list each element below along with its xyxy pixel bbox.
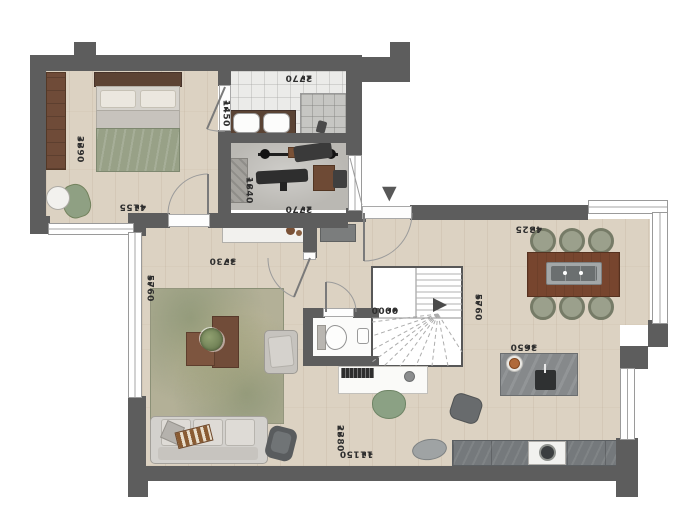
island-pot — [509, 358, 520, 369]
dim-entry-floor-level: 0000 — [386, 307, 398, 314]
stairwell — [371, 266, 463, 367]
toilet-wall — [303, 356, 379, 366]
wall — [132, 213, 170, 228]
entrance-marker-icon: ▼ — [382, 184, 397, 203]
chimney — [74, 42, 96, 57]
sink — [233, 113, 260, 133]
floor-plan: ▼ 4155 3390 2770 1450 1840 2770 3730 576… — [0, 0, 700, 530]
dim-gym-width: 2770 — [300, 206, 312, 213]
dining-chair — [530, 294, 556, 320]
sofa-cushion — [225, 419, 255, 446]
dim-bedroom-depth: 3390 — [77, 136, 84, 148]
dim-gym-depth: 1840 — [246, 177, 253, 189]
table-tray-inner — [551, 266, 597, 281]
dim-bedroom-width: 4155 — [134, 204, 146, 211]
desk-lamp — [404, 371, 415, 382]
sink — [263, 113, 290, 133]
wall — [218, 213, 348, 228]
gym-window — [348, 155, 362, 211]
dining-chair — [559, 294, 585, 320]
wall — [410, 205, 588, 220]
bed-pillow — [100, 90, 136, 108]
hall-door-jamb — [303, 252, 316, 260]
dining-chair — [588, 228, 614, 254]
washing-machine-door — [539, 444, 556, 461]
wall — [346, 71, 362, 155]
kitchen-window — [620, 368, 635, 440]
bed-blanket — [96, 128, 180, 172]
wall — [146, 466, 616, 481]
wall — [620, 346, 648, 369]
dining-chair — [559, 228, 585, 254]
wall — [30, 216, 50, 234]
bed-pillow — [140, 90, 176, 108]
bedroom-door-frame — [168, 214, 210, 227]
wall — [128, 466, 148, 497]
plyo-box — [313, 165, 335, 191]
bed-headboard — [94, 72, 182, 87]
dim-hall-width: 3730 — [224, 258, 236, 265]
desk-chair — [372, 390, 406, 419]
barbell-plate — [260, 149, 270, 159]
wall — [30, 55, 46, 234]
wall — [218, 133, 362, 143]
dim-bathroom-depth: 1450 — [223, 100, 230, 112]
living-room-window — [128, 232, 142, 398]
wardrobe — [46, 72, 66, 170]
sideboard-decor — [296, 230, 302, 236]
island-faucet — [544, 364, 546, 373]
sofa-back — [158, 447, 258, 460]
table-candle — [563, 271, 567, 275]
dim-stair-zone-depth: 5760 — [475, 294, 482, 306]
dining-chair — [588, 294, 614, 320]
gym-rack — [333, 170, 347, 188]
dim-living-depth: 5760 — [147, 275, 154, 287]
bedroom-side-table — [46, 186, 70, 210]
dim-bathroom-width: 2770 — [300, 75, 312, 82]
corner-window-side — [652, 212, 668, 324]
wall — [30, 55, 362, 71]
dim-dining-width: 4325 — [530, 226, 542, 233]
wall — [218, 71, 231, 86]
chimney — [390, 42, 410, 57]
wall — [616, 438, 638, 497]
armchair-cushion — [267, 335, 294, 368]
toilet-hand-basin — [357, 328, 369, 344]
dim-kitchen-depth: 2380 — [337, 425, 344, 437]
wall — [648, 320, 668, 347]
radiator — [341, 368, 374, 378]
front-door-frame — [362, 206, 412, 219]
table-candle — [579, 271, 583, 275]
dim-total-width: 11150 — [361, 451, 373, 458]
bench-post — [280, 182, 287, 191]
dim-kitchen-island-width: 3650 — [525, 344, 537, 351]
bedroom-window — [48, 223, 134, 235]
toilet-door-frame — [323, 308, 354, 317]
plant — [200, 328, 223, 351]
island-sink — [535, 370, 556, 390]
